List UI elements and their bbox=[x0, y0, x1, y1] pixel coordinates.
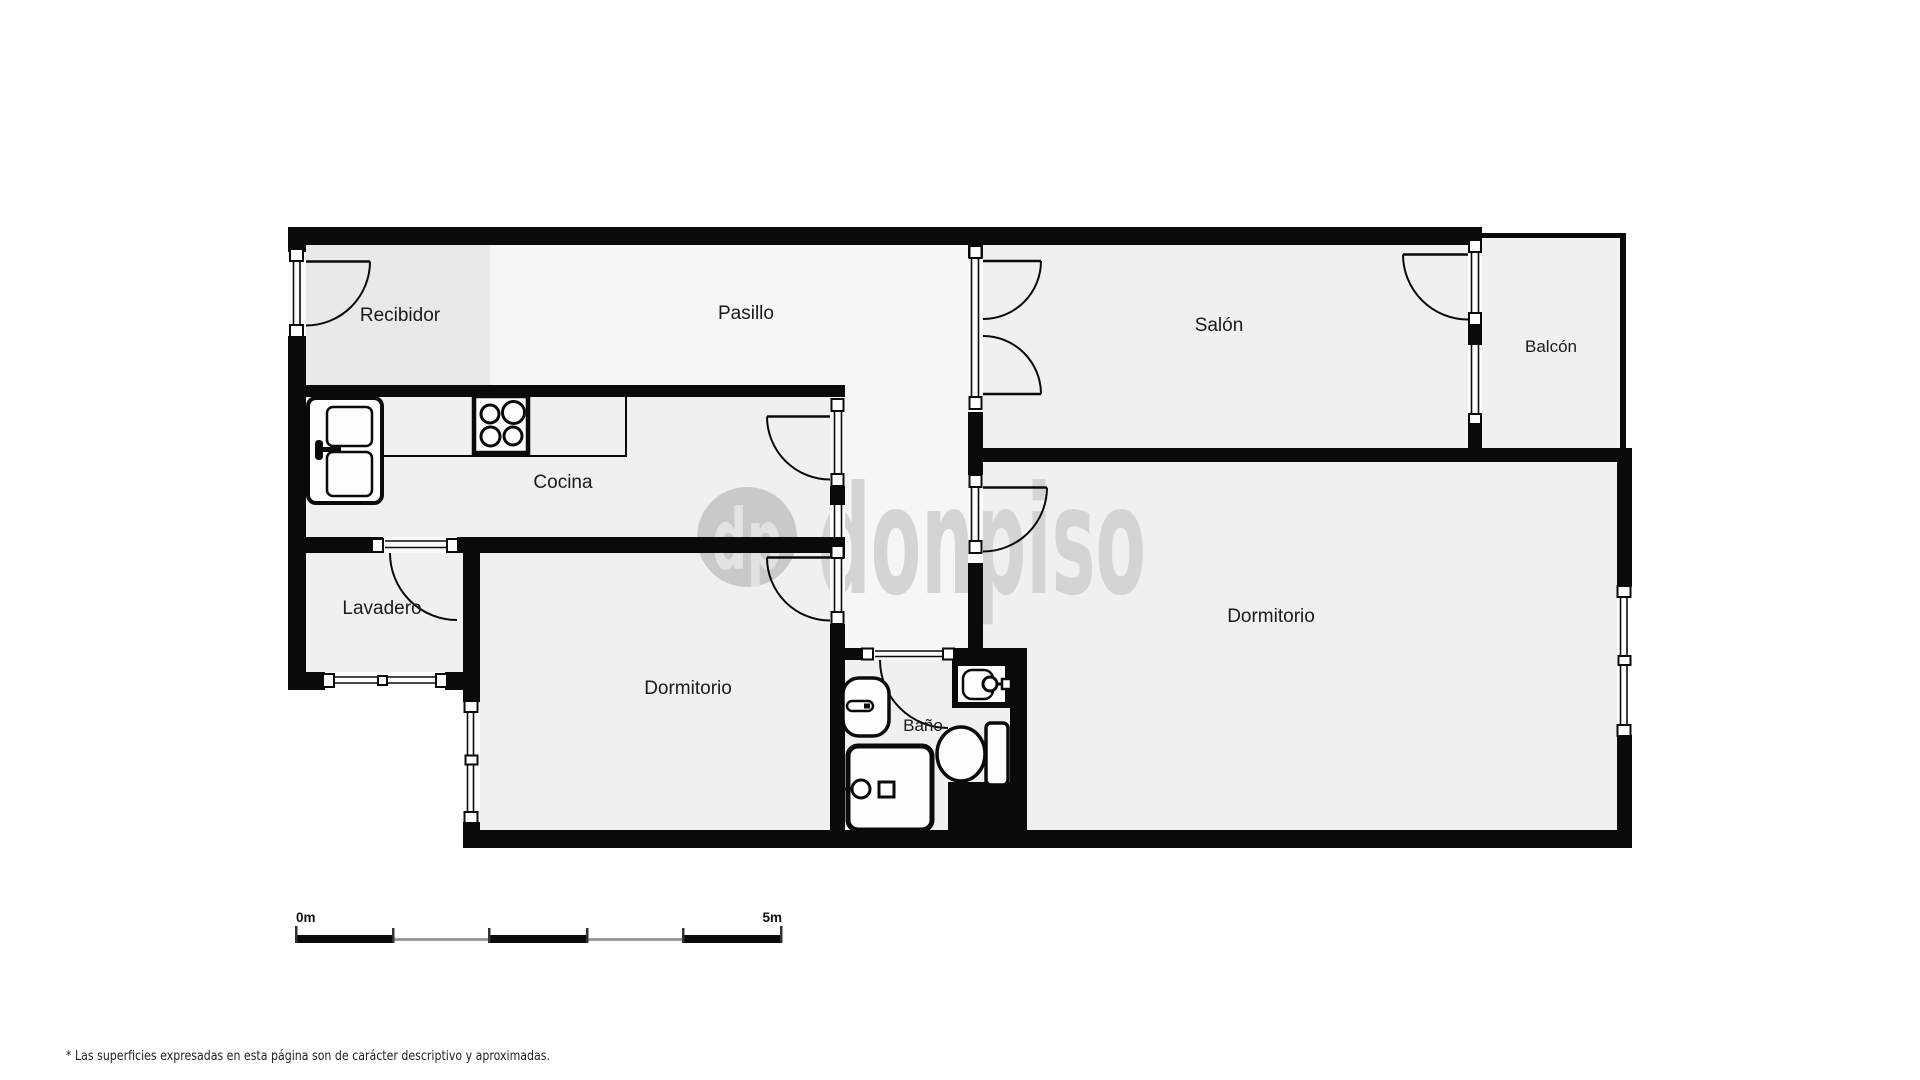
fridge-icon bbox=[308, 398, 382, 503]
door-opening-lavadero bbox=[372, 537, 458, 553]
scale-label-end: 5m bbox=[762, 910, 782, 925]
room-label-recibidor: Recibidor bbox=[360, 305, 441, 326]
door-opening-dormitorio-left bbox=[830, 546, 845, 624]
stove-icon bbox=[474, 396, 528, 453]
door-opening-cocina bbox=[830, 397, 845, 486]
wall-segment bbox=[463, 830, 1632, 848]
wall-segment-balcony-parapet-right bbox=[1620, 233, 1626, 448]
floorplan-page: dp donpiso bbox=[0, 0, 1920, 1080]
wall-segment-balcony-parapet-top bbox=[1482, 233, 1625, 238]
window-dormitorio-right bbox=[1617, 586, 1632, 736]
room-label-balcon: Balcón bbox=[1525, 337, 1577, 356]
shower-icon bbox=[845, 746, 932, 830]
wall-segment bbox=[288, 336, 306, 690]
wall-segment bbox=[1010, 648, 1027, 782]
wall-segment bbox=[1617, 735, 1632, 848]
wall-segment bbox=[288, 227, 1475, 245]
window-lavadero bbox=[323, 672, 447, 690]
bidet-icon bbox=[955, 663, 1011, 705]
wall-segment bbox=[463, 553, 480, 702]
wall-segment bbox=[1468, 424, 1482, 448]
toilet-icon bbox=[937, 723, 1008, 785]
door-opening-balcon bbox=[1468, 240, 1482, 325]
wall-segment bbox=[830, 486, 845, 505]
door-opening-entrance bbox=[288, 249, 306, 337]
room-label-dormitorio-right: Dormitorio bbox=[1227, 606, 1315, 627]
door-opening-dormitorio-right bbox=[968, 475, 983, 563]
wall-segment bbox=[1468, 325, 1482, 345]
room-label-cocina: Cocina bbox=[533, 472, 593, 493]
room-label-pasillo: Pasillo bbox=[718, 303, 774, 324]
wall-segment bbox=[968, 563, 983, 648]
door-opening-salon-double bbox=[968, 246, 983, 412]
footnote: * Las superficies expresadas en esta pág… bbox=[66, 1049, 550, 1064]
wall-segment bbox=[1617, 448, 1632, 587]
wall-segment bbox=[830, 624, 845, 848]
room-label-bano: Baño bbox=[903, 716, 943, 735]
room-label-lavadero: Lavadero bbox=[342, 598, 421, 619]
wall-segment bbox=[288, 672, 325, 690]
room-label-salon: Salón bbox=[1195, 315, 1244, 336]
wall-segment bbox=[457, 537, 830, 553]
wall-segment bbox=[288, 537, 383, 553]
room-label-dormitorio-left: Dormitorio bbox=[644, 678, 732, 699]
wall-segment bbox=[306, 385, 845, 397]
wall-segment bbox=[968, 412, 983, 475]
glazing-cocina-pasillo bbox=[830, 505, 845, 537]
window-dormitorio-left bbox=[463, 701, 480, 823]
glazing-salon-balcon bbox=[1468, 345, 1482, 424]
utility-shaft-block bbox=[948, 782, 1027, 830]
sink-icon bbox=[843, 678, 889, 736]
room-floor-salon bbox=[983, 245, 1468, 448]
scale-label-start: 0m bbox=[296, 910, 316, 925]
wall-segment bbox=[983, 448, 1632, 462]
door-opening-bano-sliding bbox=[862, 648, 954, 660]
scale-bar: 0m 5m bbox=[295, 910, 783, 943]
